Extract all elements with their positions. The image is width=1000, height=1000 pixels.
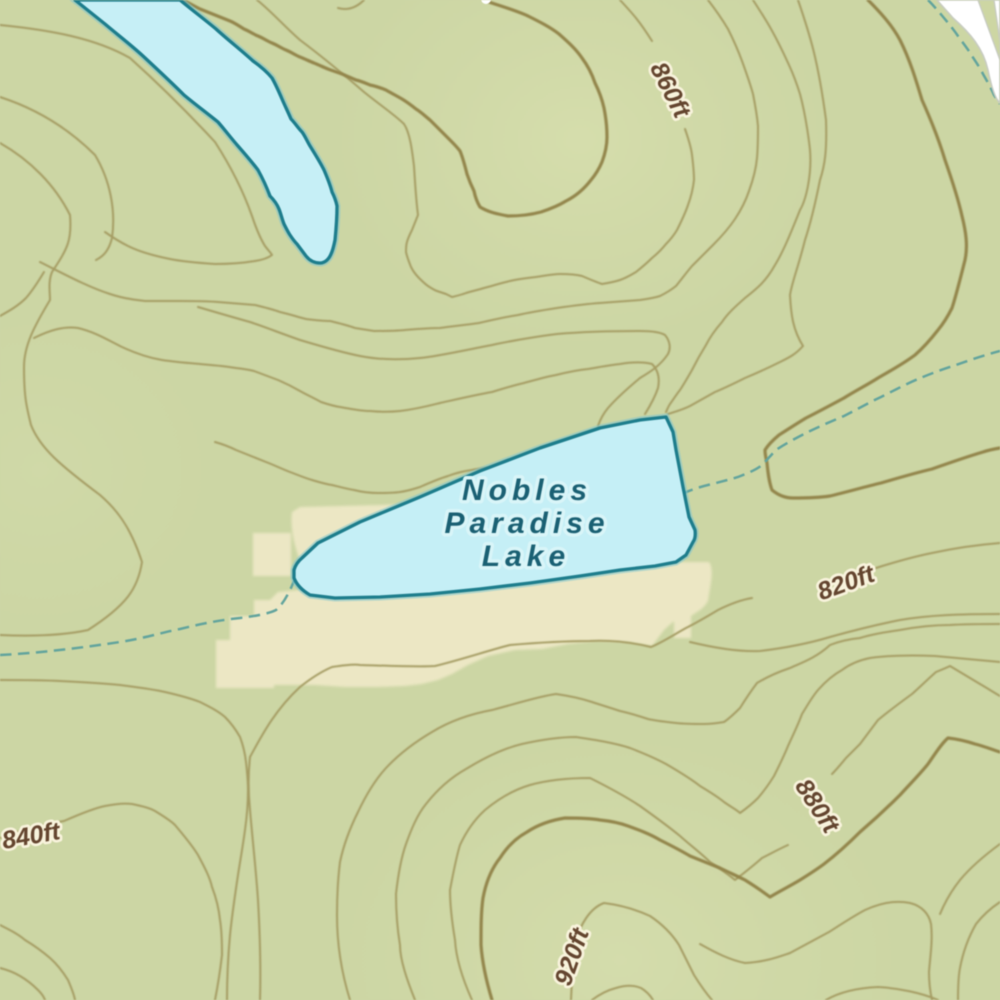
svg-text:Paradise: Paradise: [444, 507, 609, 540]
svg-text:Nobles: Nobles: [462, 474, 592, 507]
svg-text:Lake: Lake: [482, 540, 570, 573]
